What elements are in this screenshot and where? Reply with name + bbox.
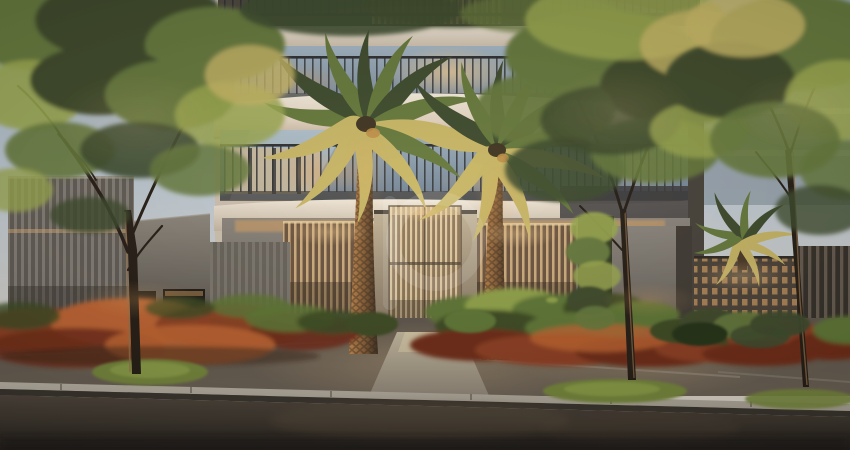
architectural-rendering <box>0 0 850 450</box>
scene-canvas <box>0 0 850 450</box>
